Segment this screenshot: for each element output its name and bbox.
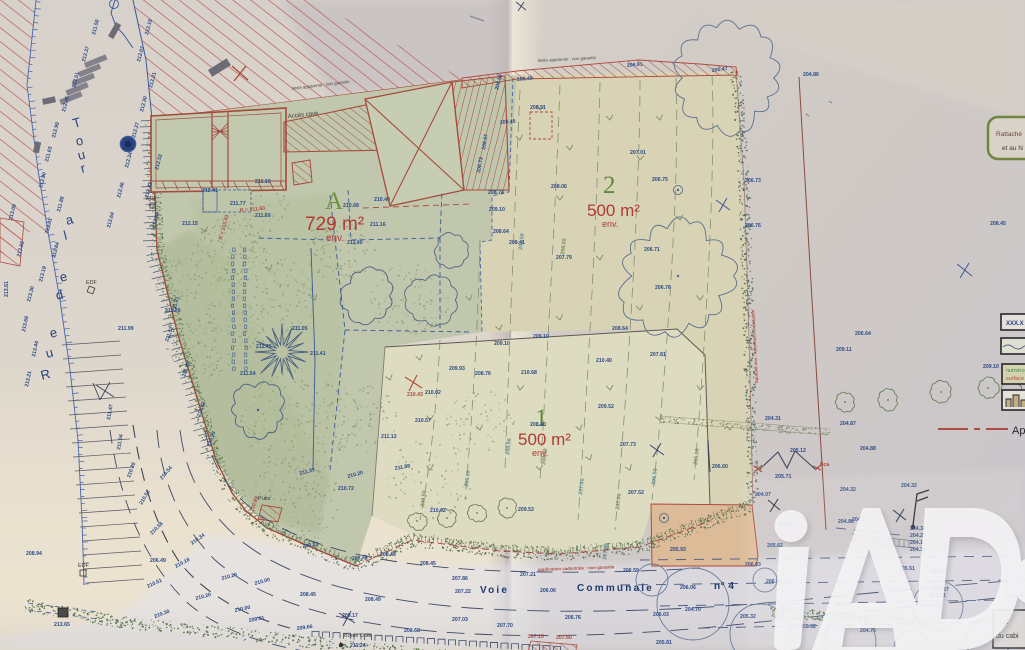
svg-text:206.71: 206.71 <box>644 247 660 253</box>
svg-text:210.68: 210.68 <box>521 370 537 376</box>
svg-text:210.40: 210.40 <box>374 197 390 203</box>
svg-text:Rattaché: Rattaché <box>996 131 1022 138</box>
svg-text:204.31: 204.31 <box>765 416 781 422</box>
svg-text:207.73: 207.73 <box>620 442 636 448</box>
svg-text:208.64: 208.64 <box>493 229 509 235</box>
svg-text:208.45: 208.45 <box>990 221 1006 227</box>
svg-text:206.73: 206.73 <box>745 178 761 184</box>
svg-text:210.02: 210.02 <box>430 508 446 514</box>
svg-text:208.49: 208.49 <box>365 597 381 603</box>
svg-text:Puits: Puits <box>258 496 271 502</box>
svg-text:207.13: 207.13 <box>528 634 544 640</box>
svg-text:209.10: 209.10 <box>489 207 505 213</box>
svg-text:208.64: 208.64 <box>612 326 628 332</box>
svg-text:209.93: 209.93 <box>449 366 465 372</box>
svg-text:211.12: 211.12 <box>381 434 397 440</box>
svg-text:206.76: 206.76 <box>655 285 671 291</box>
svg-text:211.45: 211.45 <box>256 344 272 350</box>
svg-text:Ap: Ap <box>1012 425 1025 437</box>
svg-text:210.02: 210.02 <box>425 390 441 396</box>
svg-text:212.41: 212.41 <box>202 188 218 194</box>
svg-text:207.60: 207.60 <box>556 635 572 641</box>
svg-text:211.05: 211.05 <box>292 326 308 332</box>
svg-text:204.88: 204.88 <box>860 446 876 452</box>
svg-text:209.52: 209.52 <box>598 404 614 410</box>
svg-text:205.12: 205.12 <box>790 448 806 454</box>
svg-text:207.70: 207.70 <box>497 623 513 629</box>
svg-text:729 m²: 729 m² <box>305 214 364 235</box>
svg-text:210.57: 210.57 <box>415 418 431 424</box>
svg-text:211.40: 211.40 <box>347 240 363 246</box>
svg-text:211.10: 211.10 <box>255 179 271 185</box>
svg-text:204.87: 204.87 <box>840 421 856 427</box>
svg-text:209.10: 209.10 <box>533 334 549 340</box>
svg-text:500 m²: 500 m² <box>518 430 571 449</box>
svg-text:n° 4: n° 4 <box>714 581 734 592</box>
svg-text:204.86: 204.86 <box>803 72 819 78</box>
svg-text:205.93: 205.93 <box>670 547 686 553</box>
svg-text:EDF: EDF <box>86 280 97 286</box>
svg-text:209.11: 209.11 <box>836 347 852 353</box>
svg-text:env.: env. <box>602 219 618 229</box>
svg-text:211.77: 211.77 <box>230 201 246 207</box>
svg-text:211.54: 211.54 <box>240 371 256 377</box>
svg-text:2: 2 <box>603 172 616 199</box>
svg-text:210.68: 210.68 <box>343 203 359 209</box>
svg-text:208.68: 208.68 <box>404 628 420 634</box>
svg-text:211.16: 211.16 <box>370 222 386 228</box>
svg-text:205.81: 205.81 <box>656 640 672 646</box>
svg-text:206.75: 206.75 <box>652 177 668 183</box>
svg-text:et au N: et au N <box>1002 145 1023 152</box>
svg-text:208.43: 208.43 <box>380 552 396 558</box>
svg-text:206.59: 206.59 <box>623 568 639 574</box>
svg-text:Borne OGE: Borne OGE <box>344 633 372 639</box>
svg-text:213.65: 213.65 <box>54 622 70 628</box>
svg-text:206.03: 206.03 <box>653 612 669 618</box>
svg-text:206.06: 206.06 <box>540 588 556 594</box>
svg-text:206.60: 206.60 <box>712 464 728 470</box>
svg-text:Voie: Voie <box>480 585 509 596</box>
svg-text:209.17: 209.17 <box>342 613 358 619</box>
svg-text:208.74: 208.74 <box>488 190 504 196</box>
svg-text:206.06: 206.06 <box>680 585 696 591</box>
svg-text:209.10: 209.10 <box>983 364 999 370</box>
svg-text:XXX.X: XXX.X <box>1006 321 1024 327</box>
svg-text:Communale: Communale <box>577 583 654 594</box>
svg-text:surface: surface <box>1006 376 1024 382</box>
svg-text:212.15: 212.15 <box>182 221 198 227</box>
svg-text:env.: env. <box>326 233 344 244</box>
svg-text:210.72: 210.72 <box>338 486 354 492</box>
svg-text:210.40: 210.40 <box>596 358 612 364</box>
svg-text:207.01: 207.01 <box>630 150 646 156</box>
svg-text:211.76: 211.76 <box>165 308 181 314</box>
svg-text:207.86: 207.86 <box>452 576 468 582</box>
svg-text:208.40: 208.40 <box>530 422 546 428</box>
svg-text:208.45: 208.45 <box>300 592 316 598</box>
svg-text:500 m²: 500 m² <box>587 201 640 220</box>
svg-text:207.81: 207.81 <box>650 352 666 358</box>
svg-text:numéro: numéro <box>1006 368 1025 374</box>
svg-text:204.70: 204.70 <box>685 607 701 613</box>
svg-text:211.99: 211.99 <box>118 326 134 332</box>
svg-text:208.45: 208.45 <box>420 561 436 567</box>
svg-text:211.24: 211.24 <box>350 643 366 649</box>
svg-text:207.79: 207.79 <box>556 255 572 261</box>
svg-text:208.06: 208.06 <box>551 184 567 190</box>
svg-text:207.52: 207.52 <box>628 490 644 496</box>
svg-text:208.41: 208.41 <box>509 240 525 246</box>
svg-text:207.21: 207.21 <box>520 572 536 578</box>
svg-text:211.69: 211.69 <box>255 213 271 219</box>
svg-text:208.94: 208.94 <box>26 551 42 557</box>
svg-text:206.49: 206.49 <box>150 558 166 564</box>
svg-text:209.53: 209.53 <box>518 507 534 513</box>
svg-text:208.51: 208.51 <box>530 105 546 111</box>
svg-text:EDF: EDF <box>78 563 89 569</box>
svg-text:206.64: 206.64 <box>855 331 871 337</box>
svg-text:EDF: EDF <box>146 196 157 202</box>
svg-text:213.61: 213.61 <box>4 281 10 297</box>
svg-text:206.76: 206.76 <box>565 615 581 621</box>
svg-text:211.41: 211.41 <box>310 351 326 357</box>
svg-text:208.76: 208.76 <box>475 371 491 377</box>
svg-text:207.03: 207.03 <box>452 617 468 623</box>
svg-text:A: A <box>325 188 343 215</box>
svg-text:209.10: 209.10 <box>494 341 510 347</box>
svg-text:Bca: Bca <box>820 462 829 468</box>
svg-text:env.: env. <box>532 448 548 458</box>
svg-text:210.43: 210.43 <box>407 392 423 398</box>
svg-text:206.76: 206.76 <box>745 223 761 229</box>
svg-text:207.22: 207.22 <box>455 589 471 595</box>
